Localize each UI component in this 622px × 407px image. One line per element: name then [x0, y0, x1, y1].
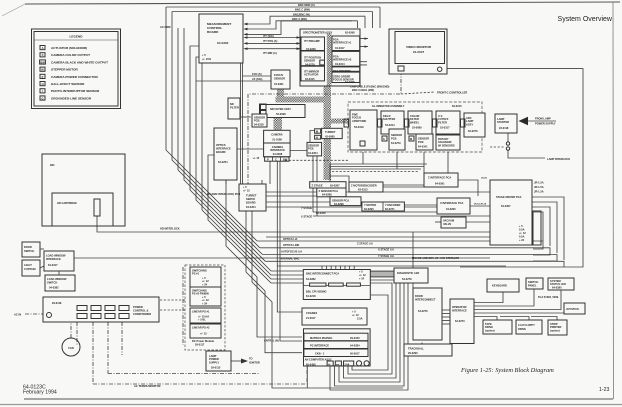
svg-text:BBL CPU BD/NG: BBL CPU BD/NG	[306, 290, 327, 294]
svg-text:POWER: POWER	[133, 305, 143, 309]
svg-text:APERTURE: APERTURE	[352, 119, 367, 123]
svg-text:AF (SIG): AF (SIG)	[252, 77, 263, 81]
svg-text:64-0218: 64-0218	[306, 294, 316, 298]
svg-text:50-0017: 50-0017	[350, 352, 360, 356]
svg-text:H: H	[42, 82, 44, 86]
svg-text:AUTOFOCUS I./A: AUTOFOCUS I./A	[281, 250, 302, 254]
svg-text:53-0319: 53-0319	[354, 125, 364, 129]
svg-text:INTERFACE: INTERFACE	[452, 309, 467, 313]
svg-text:JR-1.5A: JR-1.5A	[534, 190, 544, 194]
svg-text:ND: ND	[230, 102, 234, 106]
svg-text:TURRET: TURRET	[246, 194, 257, 198]
svg-text:S: S	[383, 137, 385, 141]
svg-text:STATUS LED: STATUS LED	[550, 282, 566, 286]
svg-text:65-0456: 65-0456	[306, 362, 316, 366]
svg-text:53-0314: 53-0314	[385, 123, 395, 127]
svg-text:JR-1A JR-1A: JR-1A JR-1A	[474, 203, 487, 206]
svg-text:62-0346: 62-0346	[316, 211, 326, 215]
svg-text:System Overview: System Overview	[558, 16, 613, 23]
svg-text:+/- 15: +/- 15	[200, 332, 207, 336]
svg-text:IGNITOR: IGNITOR	[249, 361, 260, 365]
svg-text:64-0341: 64-0341	[418, 145, 428, 149]
svg-text:+/- 12: +/- 12	[519, 231, 526, 235]
svg-text:+ 5: + 5	[352, 310, 356, 314]
svg-text:DRIVE: DRIVE	[518, 327, 526, 331]
svg-text:LEGEND: LEGEND	[70, 35, 84, 39]
svg-text:STEPPER MOTOR: STEPPER MOTOR	[51, 68, 79, 72]
svg-text:FROM LAMP: FROM LAMP	[535, 117, 551, 121]
svg-text:FOCUS: FOCUS	[274, 73, 283, 77]
svg-text:+ 24: + 24	[359, 277, 365, 281]
svg-text:POWER SUPPLY: POWER SUPPLY	[535, 122, 556, 126]
svg-text:+ 24: + 24	[519, 238, 525, 242]
svg-text:SWITCH: SWITCH	[47, 281, 57, 285]
svg-text:BW: BW	[40, 60, 45, 64]
svg-text:Y STAGE I./A: Y STAGE I./A	[378, 254, 394, 258]
svg-text:COGNEX: COGNEX	[306, 311, 318, 315]
svg-text:BNC X (BW): BNC X (BW)	[292, 17, 307, 21]
svg-text:SENSOR: SENSOR	[391, 133, 402, 137]
svg-text:BNC INTERCONNECT PCA: BNC INTERCONNECT PCA	[306, 272, 339, 276]
svg-text:FOC (S): FOC (S)	[252, 72, 262, 76]
svg-text:62-0276: 62-0276	[468, 129, 478, 133]
svg-text:04-0382: 04-0382	[49, 286, 59, 290]
svg-text:+ 5 BL: + 5 BL	[198, 318, 206, 322]
svg-text:PS #2 FW/BW: PS #2 FW/BW	[192, 292, 209, 296]
svg-text:03-0315: 03-0315	[305, 77, 315, 81]
svg-text:M: M	[316, 130, 318, 134]
svg-text:LIGHT: LIGHT	[24, 263, 32, 267]
svg-text:04-0308: 04-0308	[273, 152, 283, 156]
svg-text:P: P	[267, 157, 269, 161]
svg-text:DIAGNOSTIC LED: DIAGNOSTIC LED	[397, 271, 419, 275]
svg-text:LOAD WINDOW: LOAD WINDOW	[47, 277, 67, 281]
svg-text:62-0298: 62-0298	[345, 31, 355, 35]
svg-text:SPECTROMETER ASSY: SPECTROMETER ASSY	[303, 31, 333, 35]
svg-text:PCB: PCB	[254, 119, 260, 123]
svg-text:INTERFACE: INTERFACE	[46, 257, 61, 261]
svg-text:HD: HD	[50, 163, 55, 167]
svg-text:PLA 51084_5299: PLA 51084_5299	[538, 295, 559, 299]
svg-text:G: G	[41, 96, 43, 100]
svg-text:BOARD: BOARD	[216, 150, 226, 154]
svg-text:52-0098: 52-0098	[276, 112, 286, 116]
svg-text:W/ SENSORS: W/ SENSORS	[438, 143, 455, 147]
svg-text:INTERFACE #2: INTERFACE #2	[333, 58, 352, 62]
svg-text:X STAGE: X STAGE	[301, 215, 312, 219]
svg-text:A: A	[42, 46, 44, 50]
svg-text:ASSY: ASSY	[466, 122, 473, 126]
svg-text:M: M	[410, 137, 412, 141]
svg-text:29-0160: 29-0160	[350, 336, 360, 340]
svg-text:23-0118: 23-0118	[499, 126, 509, 130]
svg-text:04-0298: 04-0298	[306, 47, 316, 51]
svg-text:JR-1.5A: JR-1.5A	[534, 185, 544, 189]
svg-text:64-0282: 64-0282	[306, 277, 316, 281]
svg-text:CONDITIONER: CONDITIONER	[133, 312, 151, 316]
svg-text:0.5A: 0.5A	[519, 235, 525, 239]
svg-text:ITT POS (A): ITT POS (A)	[263, 39, 278, 43]
svg-text:FRONT-C CONTROLLER: FRONT-C CONTROLLER	[437, 91, 467, 95]
svg-text:BNC CABLE (BW): BNC CABLE (BW)	[352, 88, 374, 92]
svg-text:LAMP INTERLOCK: LAMP INTERLOCK	[547, 157, 570, 161]
svg-text:64-0317: 64-0317	[48, 263, 58, 267]
svg-text:VGA: VGA	[345, 363, 350, 366]
svg-text:JR-2A: JR-2A	[481, 177, 487, 180]
svg-text:64-0279: 64-0279	[391, 141, 401, 145]
svg-text:February 1994: February 1994	[23, 389, 57, 395]
svg-text:BNC MON (X): BNC MON (X)	[298, 3, 315, 7]
svg-text:PANEL: PANEL	[528, 284, 537, 288]
svg-text:HALL-EFECT SENSOR: HALL-EFECT SENSOR	[51, 82, 85, 86]
svg-text:TO: TO	[249, 357, 253, 361]
svg-text:53-0089: 53-0089	[412, 126, 422, 130]
svg-text:SWITCH: SWITCH	[528, 280, 538, 284]
svg-text:42-0080: 42-0080	[325, 134, 335, 138]
svg-text:TURRET: TURRET	[325, 130, 336, 134]
svg-text:CAMERA: CAMERA	[271, 133, 283, 137]
svg-text:04-0284: 04-0284	[350, 344, 360, 348]
svg-text:BOARD: BOARD	[207, 30, 219, 34]
svg-text:SENSOR: SENSOR	[274, 77, 285, 81]
svg-text:+ 5: + 5	[359, 270, 363, 274]
svg-text:+/- 12: +/- 12	[359, 273, 366, 277]
svg-text:2.0A: 2.0A	[357, 317, 363, 321]
svg-text:CURTAIN: CURTAIN	[24, 267, 36, 271]
svg-text:AC PWR: AC PWR	[160, 25, 171, 29]
svg-text:TRACKBALL: TRACKBALL	[408, 347, 424, 351]
svg-text:JR-1.5A: JR-1.5A	[534, 181, 544, 185]
svg-text:FAN: FAN	[68, 346, 73, 350]
svg-text:C: C	[275, 157, 277, 161]
svg-text:64-0273: 64-0273	[455, 319, 465, 323]
svg-text:ACTUATOR: ACTUATOR	[304, 73, 318, 77]
svg-text:WHEEL: WHEEL	[410, 120, 420, 124]
svg-text:CONTROL &: CONTROL &	[133, 309, 148, 313]
svg-text:ITT MIR (A): ITT MIR (A)	[263, 51, 277, 55]
svg-text:HD CARTRIDGE: HD CARTRIDGE	[57, 201, 77, 205]
svg-text:04-0391: 04-0391	[274, 82, 284, 86]
svg-text:FILTER: FILTER	[438, 120, 447, 124]
svg-text:+/- 12: +/- 12	[352, 313, 359, 317]
svg-text:+ 5: + 5	[202, 53, 206, 57]
svg-text:62-0290: 62-0290	[364, 207, 374, 211]
svg-text:29-0115: 29-0115	[211, 366, 221, 370]
svg-text:GROUNDED-LINE SENSOR: GROUNDED-LINE SENSOR	[51, 96, 92, 100]
svg-text:+ 5: + 5	[519, 224, 523, 228]
svg-text:1-23: 1-23	[599, 387, 609, 393]
svg-text:ACTUATOR (SOLENOID): ACTUATOR (SOLENOID)	[51, 46, 87, 50]
svg-text:X INTERFACE PCA: X INTERFACE PCA	[440, 201, 463, 205]
svg-text:INTERFACE #1: INTERFACE #1	[333, 41, 352, 45]
svg-text:VALVE: VALVE	[443, 222, 452, 226]
svg-text:Z MOTOR/ENCODER: Z MOTOR/ENCODER	[351, 184, 377, 188]
svg-text:BNC C (BW): BNC C (BW)	[295, 8, 310, 12]
svg-text:+/- 12: +/- 12	[243, 189, 250, 193]
svg-text:Z INTERFACE PCA: Z INTERFACE PCA	[428, 176, 451, 180]
svg-text:PC INTERFACE: PC INTERFACE	[310, 344, 329, 348]
svg-text:62-0271: 62-0271	[385, 207, 395, 211]
svg-text:par: par	[336, 364, 340, 366]
svg-text:Z STAGE I./A: Z STAGE I./A	[357, 242, 373, 246]
svg-text:BW: BW	[283, 157, 288, 161]
svg-text:C: C	[42, 53, 44, 57]
svg-text:INTERNAL BNC: INTERNAL BNC	[280, 257, 300, 261]
svg-text:3 1/2 FLOPPY: 3 1/2 FLOPPY	[518, 323, 535, 327]
svg-text:P: P	[42, 75, 44, 79]
svg-text:M: M	[41, 68, 43, 72]
svg-text:0.5A: 0.5A	[519, 228, 525, 232]
svg-text:(04-0382 INTERLOCK) PCB: (04-0382 INTERLOCK) PCB	[207, 192, 240, 196]
svg-text:04-0290: 04-0290	[446, 207, 456, 211]
svg-text:OPTICS I./A: OPTICS I./A	[283, 237, 298, 241]
svg-text:STAGE DRIVER PCA: STAGE DRIVER PCA	[496, 195, 522, 199]
svg-text:X STAGE I./A: X STAGE I./A	[378, 248, 394, 252]
svg-text:CAMERA POWER CONNECTOR: CAMERA POWER CONNECTOR	[51, 75, 99, 79]
svg-text:21-0047: 21-0047	[413, 50, 425, 54]
svg-text:64-0254: 64-0254	[218, 160, 228, 164]
svg-text:MOUSE AND DIPL I/O 4 KD STERLI: MOUSE AND DIPL I/O 4 KD STERLIOR	[412, 256, 459, 260]
svg-text:OPTICS LINK: OPTICS LINK	[283, 243, 300, 247]
svg-text:04-0318: 04-0318	[254, 123, 264, 127]
svg-text:Z STAGE: Z STAGE	[312, 183, 323, 187]
svg-text:INTERFACE: INTERFACE	[270, 148, 285, 152]
svg-text:64-0307: 64-0307	[501, 204, 511, 208]
svg-text:64-0298: 64-0298	[345, 80, 355, 84]
svg-text:INTERCONNECT: INTERCONNECT	[415, 298, 436, 302]
svg-text:+/- 15%: +/- 15%	[202, 57, 212, 61]
svg-text:64-0304: 64-0304	[246, 205, 256, 209]
svg-text:29-0290: 29-0290	[408, 351, 418, 355]
svg-text:21-0108: 21-0108	[272, 138, 282, 142]
svg-text:+ 24: + 24	[202, 282, 208, 286]
svg-text:OPERATOR: OPERATOR	[452, 305, 467, 309]
svg-text:MATROX MARVEL: MATROX MARVEL	[310, 336, 333, 340]
svg-text:ILLUMINATOR ASSEMBLY: ILLUMINATOR ASSEMBLY	[372, 104, 405, 108]
svg-text:DOOR: DOOR	[24, 245, 32, 249]
svg-text:CKB - 1: CKB - 1	[315, 352, 325, 356]
svg-text:62-0210: 62-0210	[452, 104, 462, 108]
svg-text:ITT PREAMP: ITT PREAMP	[304, 39, 320, 43]
svg-text:SHUTTER: SHUTTER	[383, 117, 395, 121]
svg-text:64-0298: 64-0298	[334, 202, 344, 206]
svg-text:+ 24: + 24	[202, 301, 208, 305]
svg-text:PHOTO-INTERRUPTOR SENSOR: PHOTO-INTERRUPTOR SENSOR	[51, 89, 100, 93]
svg-text:64-0278: 64-0278	[402, 277, 412, 281]
svg-text:STARTER: STARTER	[497, 120, 509, 124]
svg-text:VIDEO MONITOR: VIDEO MONITOR	[406, 45, 432, 49]
svg-text:SENSOR: SENSOR	[418, 137, 429, 141]
svg-text:DOOR: DOOR	[415, 294, 423, 298]
svg-text:HD INTERLOCK: HD INTERLOCK	[160, 227, 180, 231]
svg-text:PCB: PCB	[308, 147, 314, 151]
svg-text:SUPPLY: SUPPLY	[209, 360, 219, 364]
svg-text:INTERFACE: INTERFACE	[216, 147, 231, 151]
svg-text:+/- 15: +/- 15	[253, 156, 260, 160]
svg-text:AC IN: AC IN	[14, 313, 21, 317]
svg-text:29-0117: 29-0117	[195, 343, 205, 347]
svg-text:Figure 1-25: System Block Diag: Figure 1-25: System Block Diagram	[460, 367, 554, 374]
svg-text:DC Power Module: DC Power Module	[192, 339, 215, 343]
svg-text:LINEAR PS #2: LINEAR PS #2	[192, 326, 210, 330]
svg-text:FILTER: FILTER	[230, 106, 239, 110]
svg-text:53-0317: 53-0317	[440, 126, 450, 130]
svg-text:CAMERA COLOR OUTPUT: CAMERA COLOR OUTPUT	[51, 53, 90, 57]
svg-text:PCB: PCB	[391, 137, 397, 141]
svg-text:(option): (option)	[485, 328, 495, 332]
svg-text:29-0118: 29-0118	[52, 301, 62, 305]
svg-text:SWITCH: SWITCH	[24, 249, 34, 253]
svg-text:Y ENCODER: Y ENCODER	[385, 203, 401, 207]
svg-text:OPTICS: OPTICS	[216, 143, 226, 147]
svg-text:AC TERMS MONITOR: AC TERMS MONITOR	[134, 384, 161, 388]
svg-text:KEYBOARD: KEYBOARD	[492, 284, 507, 288]
svg-text:PS #1: PS #1	[192, 272, 200, 276]
svg-text:04-0314: 04-0314	[335, 62, 345, 66]
svg-text:BOARD: BOARD	[246, 201, 256, 205]
svg-text:ITT (SIG): ITT (SIG)	[263, 34, 274, 38]
svg-text:Y MOTOR: Y MOTOR	[364, 203, 376, 207]
svg-text:64-0276: 64-0276	[418, 309, 428, 313]
svg-text:64-0288: 64-0288	[322, 193, 332, 197]
svg-text:ND FILTER ASSY: ND FILTER ASSY	[270, 107, 291, 111]
svg-text:04-0304: 04-0304	[308, 151, 318, 155]
svg-text:62-0267: 62-0267	[330, 183, 340, 187]
svg-text:Z SENSOR PCA: Z SENSOR PCA	[319, 189, 339, 193]
svg-text:+ 5: + 5	[243, 185, 247, 189]
svg-text:LOAD WINDOW: LOAD WINDOW	[46, 254, 66, 258]
svg-text:64-0302: 64-0302	[217, 41, 229, 45]
svg-text:04-0317: 04-0317	[335, 46, 345, 50]
svg-text:H: H	[316, 136, 318, 140]
svg-text:PCB: PCB	[418, 140, 424, 144]
svg-text:63-0313: 63-0313	[358, 188, 368, 192]
svg-text:SERVO: SERVO	[246, 197, 255, 201]
svg-text:64-0280: 64-0280	[552, 286, 562, 290]
svg-text:64-0291: 64-0291	[435, 182, 445, 186]
svg-text:21-0017: 21-0017	[306, 316, 316, 320]
svg-text:Y STAGE: Y STAGE	[301, 206, 312, 210]
svg-text:JOYSTICK: JOYSTICK	[566, 307, 579, 311]
svg-text:CNTRXL (N): CNTRXL (N)	[264, 339, 279, 343]
svg-text:SENSOR PCA: SENSOR PCA	[332, 199, 349, 203]
svg-text:BNC/BNC (W): BNC/BNC (W)	[293, 12, 310, 16]
svg-text:SENSOR: SENSOR	[304, 59, 315, 63]
svg-text:VACUUM: VACUUM	[443, 219, 454, 223]
svg-text:(option): (option)	[550, 328, 560, 332]
svg-text:LINEAR PS #1: LINEAR PS #1	[192, 310, 210, 314]
svg-text:CAMERA BLACK AND WHITE OUTPUT: CAMERA BLACK AND WHITE OUTPUT	[51, 60, 108, 64]
